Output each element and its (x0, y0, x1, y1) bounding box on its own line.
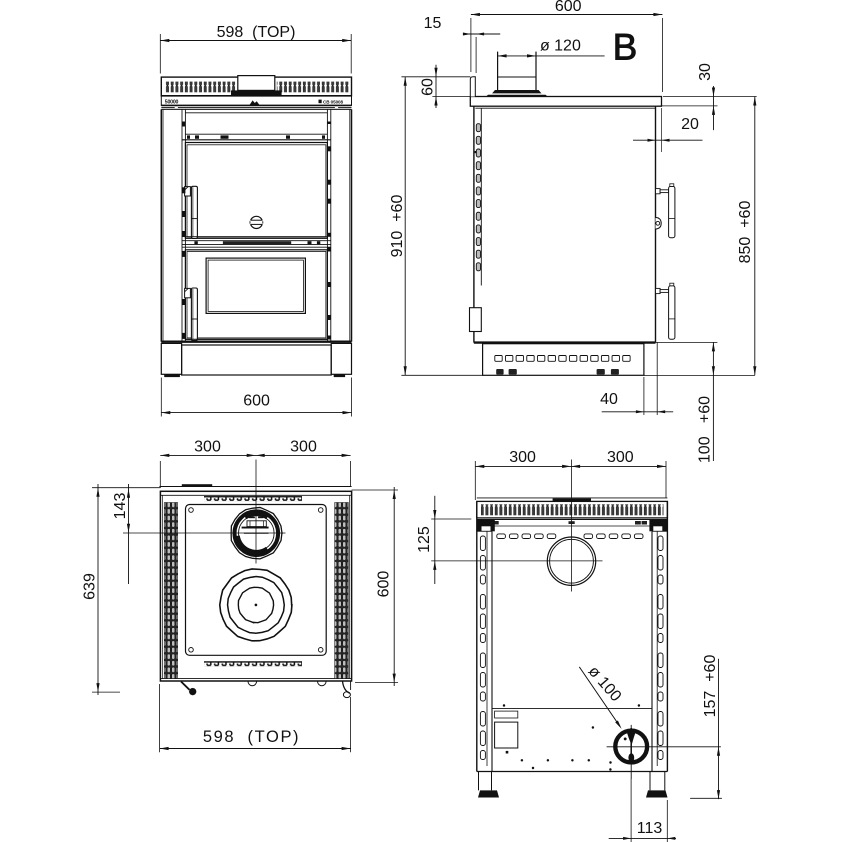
svg-text:20: 20 (681, 116, 699, 133)
svg-text:15: 15 (424, 15, 442, 32)
svg-text:910 +60: 910 +60 (389, 195, 406, 258)
svg-text:60: 60 (419, 78, 436, 96)
svg-text:600: 600 (555, 0, 582, 15)
svg-text:30: 30 (697, 63, 714, 81)
svg-text:300: 300 (607, 449, 634, 466)
svg-text:157 +60: 157 +60 (702, 655, 719, 718)
svg-text:B: B (613, 27, 638, 68)
svg-text:598 (TOP): 598 (TOP) (217, 24, 296, 41)
svg-text:300: 300 (290, 439, 317, 456)
svg-text:113: 113 (637, 820, 663, 837)
svg-text:600: 600 (375, 571, 392, 598)
svg-text:40: 40 (600, 391, 618, 408)
svg-text:100 +60: 100 +60 (697, 396, 714, 463)
svg-text:50000: 50000 (165, 99, 179, 105)
svg-text:CB 05008: CB 05008 (323, 99, 343, 104)
svg-text:300: 300 (509, 449, 536, 466)
svg-text:ø 120: ø 120 (540, 37, 581, 54)
svg-text:125: 125 (416, 526, 433, 553)
svg-text:143: 143 (112, 493, 129, 520)
svg-text:850 +60: 850 +60 (737, 201, 754, 264)
svg-text:639: 639 (81, 573, 98, 600)
svg-text:598 (TOP): 598 (TOP) (203, 728, 300, 746)
svg-text:600: 600 (243, 393, 270, 410)
svg-text:300: 300 (194, 439, 221, 456)
